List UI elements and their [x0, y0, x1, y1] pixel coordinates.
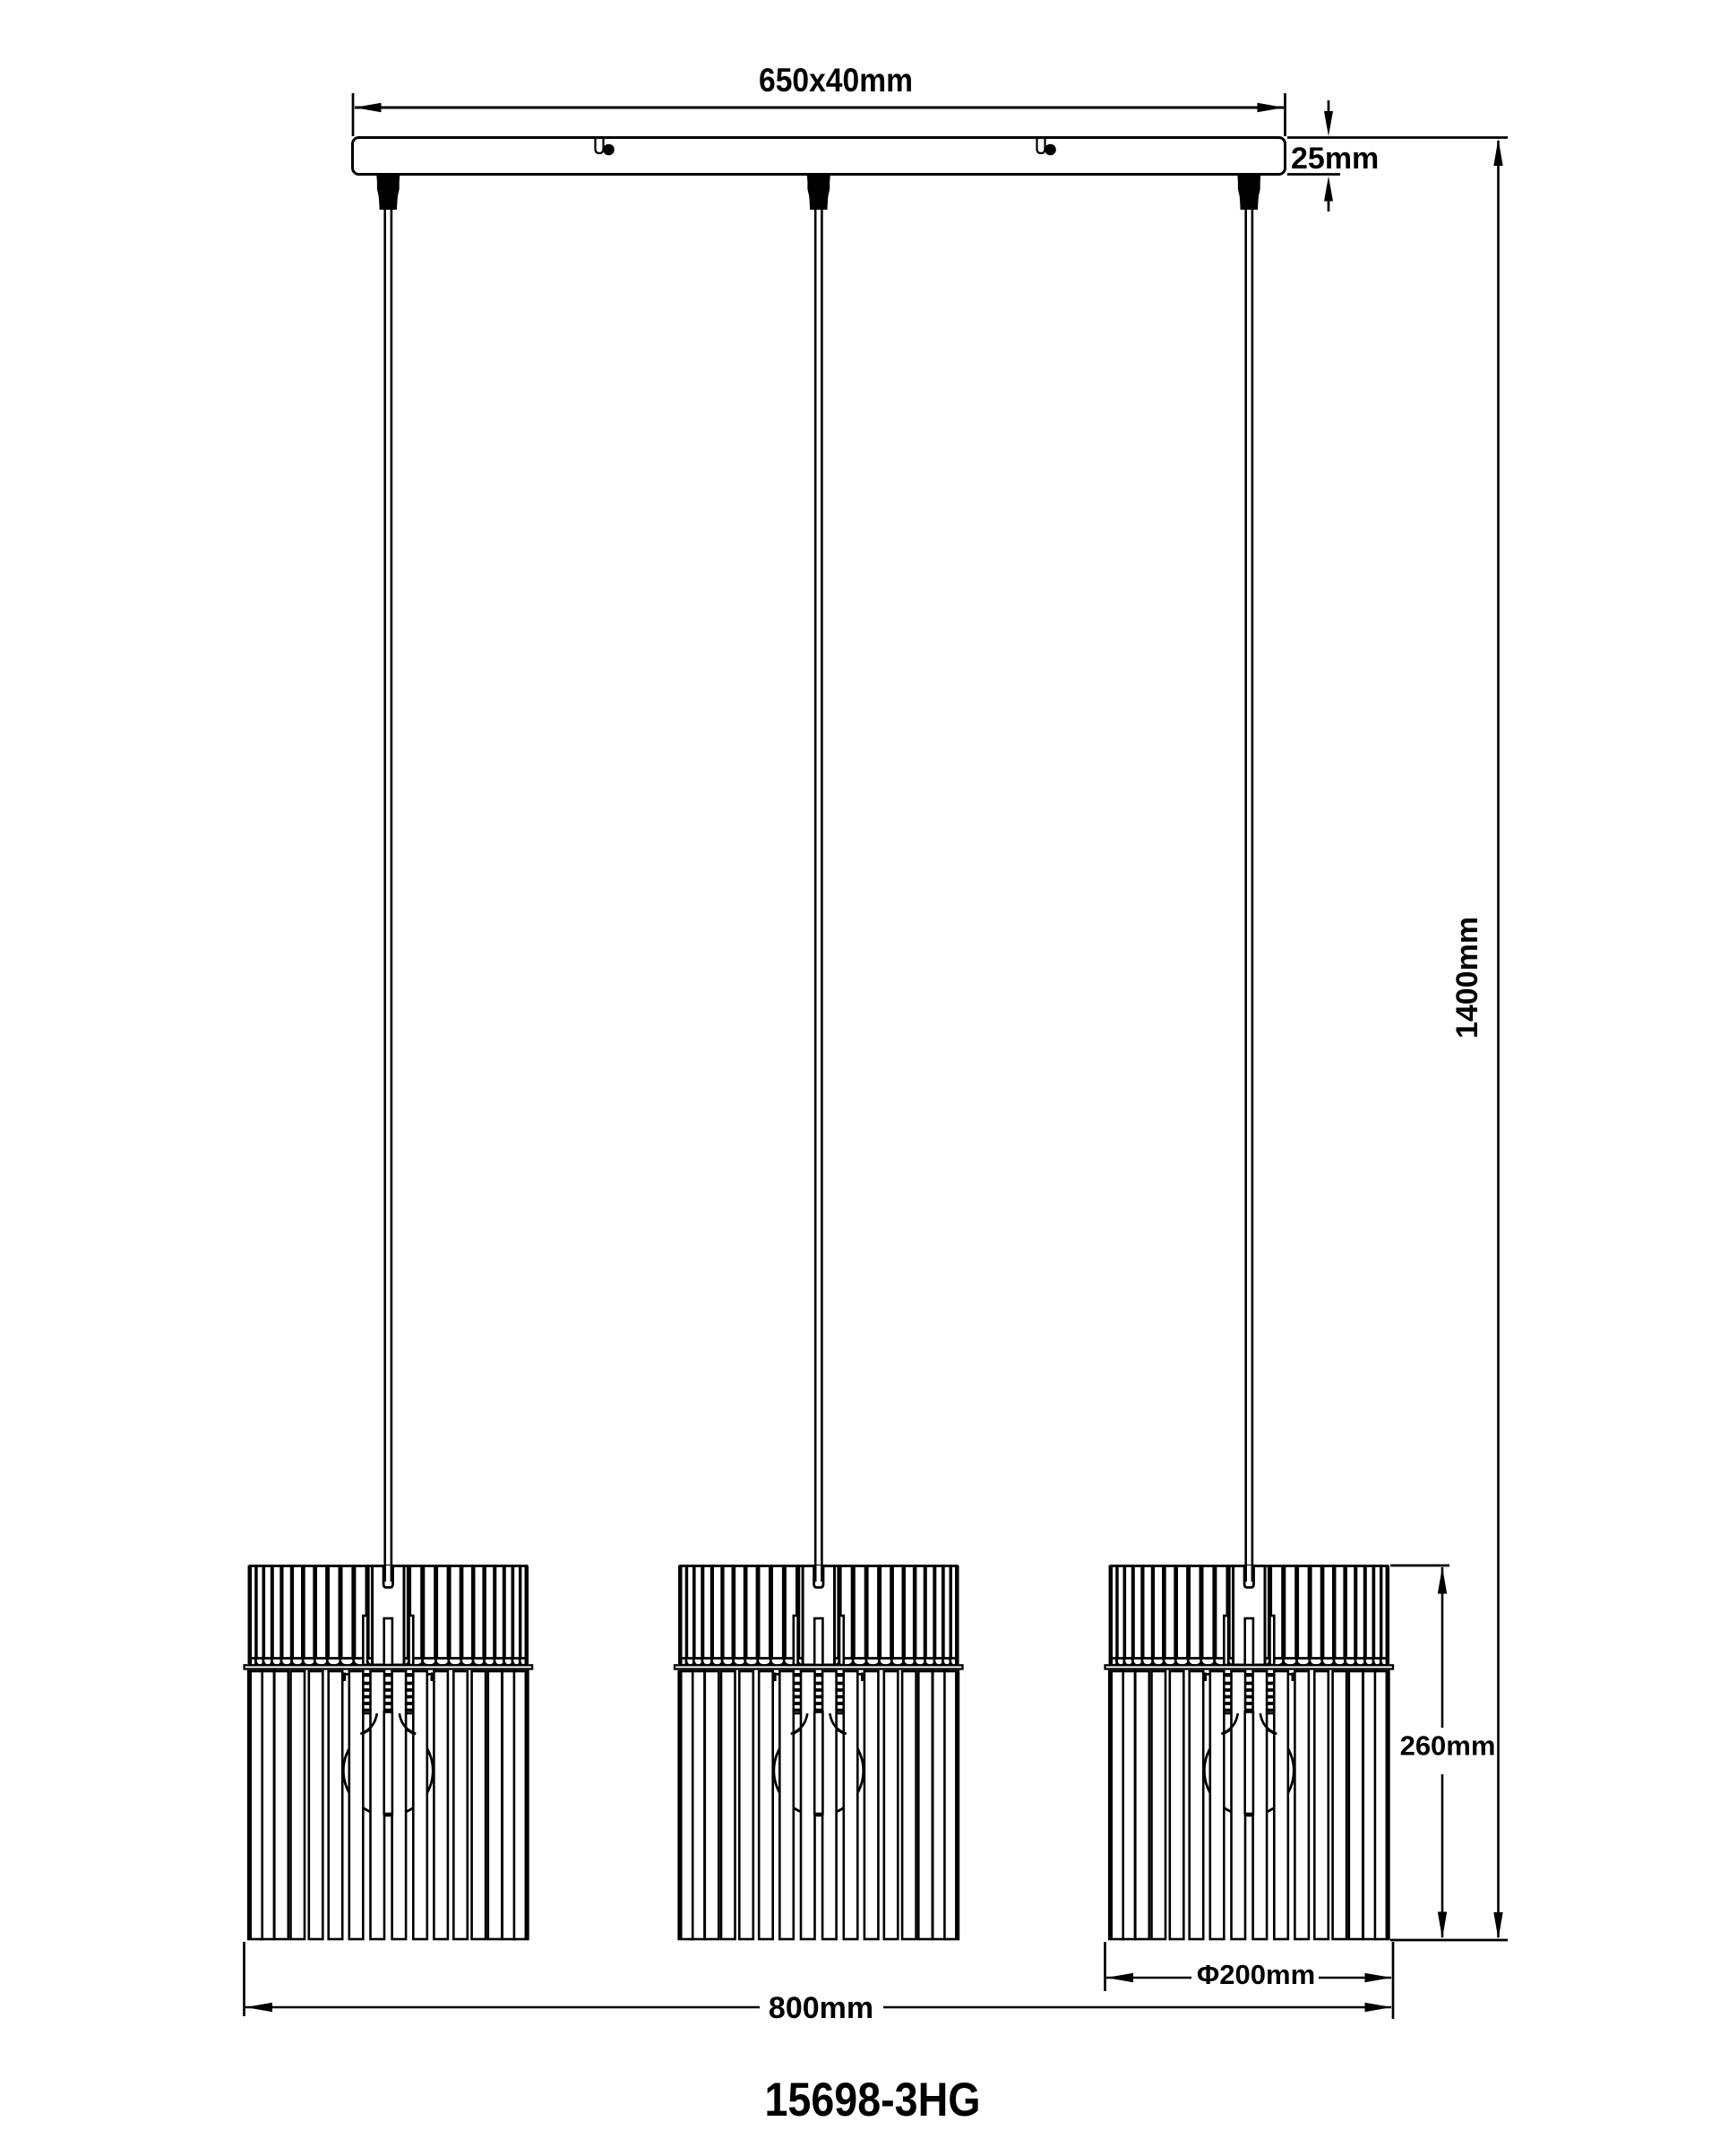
svg-text:1400mm: 1400mm [1450, 917, 1484, 1039]
svg-text:Φ200mm: Φ200mm [1197, 1959, 1315, 1990]
svg-text:260mm: 260mm [1400, 1730, 1496, 1762]
svg-text:25mm: 25mm [1291, 142, 1379, 176]
svg-text:650x40mm: 650x40mm [759, 63, 913, 99]
svg-text:15698-3HG: 15698-3HG [764, 2073, 980, 2126]
svg-text:800mm: 800mm [769, 1991, 873, 2025]
